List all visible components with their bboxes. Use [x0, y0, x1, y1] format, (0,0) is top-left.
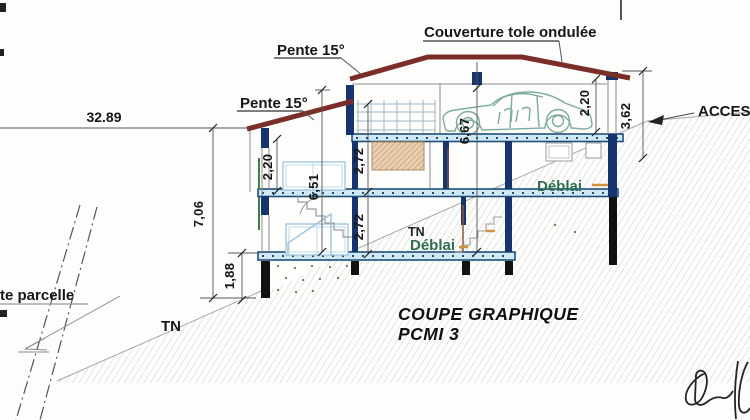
- tn-left-label: TN: [161, 318, 181, 335]
- deblai-lower-label: Déblai: [410, 237, 455, 254]
- section-drawing-page: 32.89 7,06 1,88 2,20 6,51 2,72 2,72 6,67…: [0, 0, 750, 420]
- garage-left-column: [346, 85, 354, 135]
- deblai-upper-label: Déblai: [537, 178, 582, 195]
- left-wall-mid: [261, 196, 269, 215]
- title-line-1: COUPE GRAPHIQUE: [398, 304, 579, 324]
- wall-frame-2: [586, 143, 601, 158]
- dim-garage-height: 2,20: [577, 90, 592, 117]
- dim-footing: 1,88: [222, 263, 237, 290]
- upper-roof: [350, 57, 630, 79]
- parcel-limit-lines: [0, 205, 120, 420]
- parcel-limit-label: te parcelle: [0, 287, 74, 304]
- dim-center-total: 6,67: [457, 118, 472, 145]
- dim-total-width: 32.89: [86, 109, 121, 125]
- dim-left-storey: 2,20: [260, 154, 275, 181]
- slope-upper-label: Pente 15°: [277, 42, 345, 59]
- left-wall-top: [261, 128, 269, 148]
- right-wall-upper: [608, 134, 617, 197]
- dim-left-total: 6,51: [306, 174, 321, 201]
- access-label: ACCES: [698, 103, 750, 120]
- hatched-wall-panel: [372, 142, 424, 170]
- dim-mid-lower: 2,72: [351, 214, 366, 241]
- section-drawing-canvas: 32.89 7,06 1,88 2,20 6,51 2,72 2,72 6,67…: [0, 0, 750, 420]
- mid-column-3: [505, 141, 512, 189]
- title-line-2: PCMI 3: [398, 324, 459, 344]
- dim-access-drop: 3,62: [618, 103, 633, 130]
- roof-cover-label: Couverture tole ondulée: [424, 24, 597, 41]
- roofs: [247, 57, 630, 129]
- dim-mid-upper: 2,72: [351, 148, 366, 175]
- dim-left-overall: 7,06: [191, 201, 206, 228]
- lower-right-wall: [505, 197, 512, 252]
- slope-lower-label: Pente 15°: [240, 95, 308, 112]
